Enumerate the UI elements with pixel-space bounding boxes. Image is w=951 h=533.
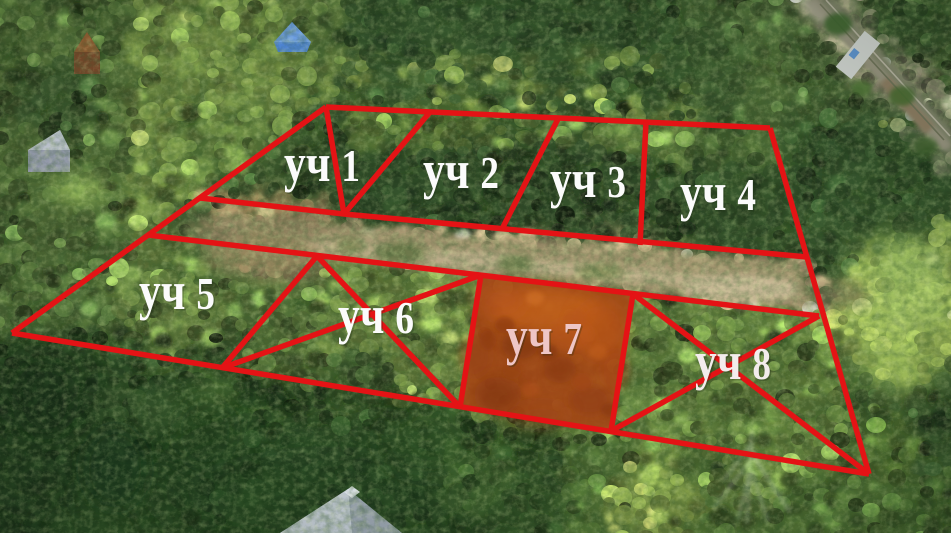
svg-text:уч 7: уч 7	[506, 306, 582, 366]
svg-text:уч 2: уч 2	[423, 140, 499, 200]
svg-text:уч 5: уч 5	[139, 261, 215, 321]
svg-text:уч 1: уч 1	[284, 133, 360, 193]
svg-text:уч 4: уч 4	[680, 162, 756, 222]
svg-text:уч 6: уч 6	[338, 285, 414, 345]
svg-text:уч 3: уч 3	[550, 149, 626, 209]
svg-text:уч 8: уч 8	[695, 331, 771, 391]
